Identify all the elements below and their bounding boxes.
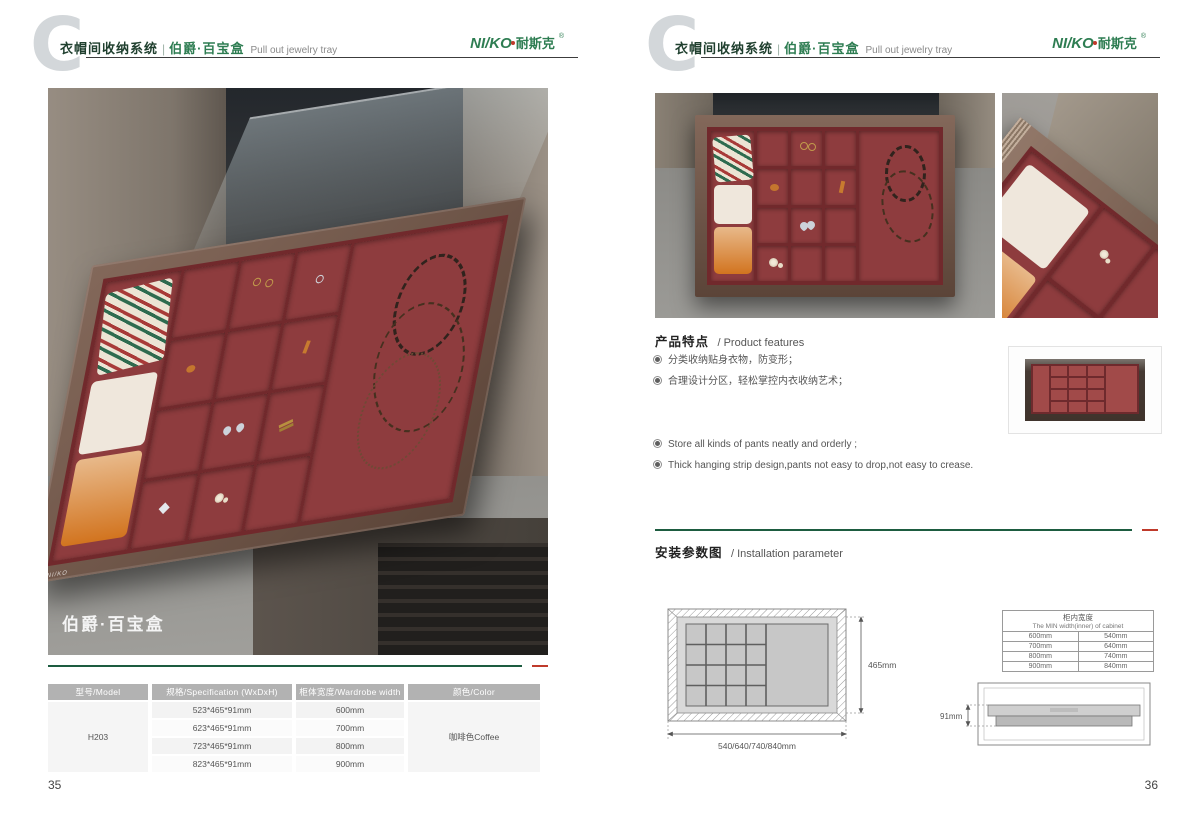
spec-model-cell: H203 [48,702,148,772]
series-title: 衣帽间收纳系统 [60,41,158,56]
nisko-logo: NI/KO 耐斯克 ® [1052,33,1146,52]
catalog-spread: C 衣帽间收纳系统|伯爵·百宝盒Pull out jewelry tray NI… [0,0,1200,820]
compartment [1033,366,1049,412]
product-thumbnail [1008,346,1162,434]
product-title: 伯爵·百宝盒 [784,41,859,56]
cream-scarf [77,372,157,455]
feature-text: 分类收纳贴身衣物，防变形； [668,354,798,368]
thumbnail-tray [1025,359,1145,421]
crystal-icon [159,503,170,515]
spec-header-width: 柜体宽度/Wardrobe width [296,684,404,700]
spec-cell: 600mm [296,702,404,718]
spec-cell: 823*465*91mm [152,756,292,772]
product-title: 伯爵·百宝盒 [169,41,244,56]
orange-scarf [714,227,752,274]
product-name-overlay: 伯爵·百宝盒 [62,610,165,635]
cell: 900mm [1003,662,1079,672]
compartment [757,169,788,204]
compartment [791,169,822,204]
logo-latin: NI/KO [470,35,512,52]
header-title: 衣帽间收纳系统|伯爵·百宝盒Pull out jewelry tray [675,38,952,58]
cell: 740mm [1078,652,1154,662]
compartment [825,169,856,204]
earring-icon [808,143,816,151]
tray-compartments [707,127,943,285]
heart-earring-icon [221,424,232,436]
heart-earring-icon [235,421,246,433]
feature-item: Store all kinds of pants neatly and orde… [655,438,1005,452]
table-row: 900mm840mm [1003,662,1154,672]
feature-item: Thick hanging strip design,pants not eas… [655,459,1005,473]
amber-pendant-icon [186,364,196,373]
features-list-cn: 分类收纳贴身衣物，防变形； 合理设计分区，轻松掌控内衣收纳艺术； [655,354,1005,395]
cell: 800mm [1003,652,1079,662]
compartment [1069,390,1086,400]
feature-text: 合理设计分区，轻松掌控内衣收纳艺术； [668,375,848,389]
header-title: 衣帽间收纳系统|伯爵·百宝盒Pull out jewelry tray [60,38,337,58]
logo-cjk: 耐斯克 [1098,33,1137,52]
bullet-icon [655,441,660,446]
compartment [757,131,788,166]
orange-scarf [60,450,143,547]
earring-icon [252,278,262,288]
logo-o-dot-icon [1093,41,1097,45]
feature-item: 合理设计分区，轻松掌控内衣收纳艺术； [655,375,1005,389]
compartment [757,208,788,243]
spec-cell: 523*465*91mm [152,702,292,718]
header-rule [86,57,578,58]
photo-tray-detail [1002,93,1158,318]
min-width-table: 柜内宽度 The MIN width(inner) of cabinet 600… [1002,610,1154,672]
compartment [791,131,822,166]
height-dimension-label: 91mm [940,712,963,721]
compartment [825,208,856,243]
rule-green [655,529,1132,531]
header-rule [701,57,1160,58]
heart-earring-icon [805,219,816,230]
cream-scarf [714,185,752,224]
compartment [1069,378,1086,388]
title-divider: | [777,42,780,56]
spec-cell: 800mm [296,738,404,754]
flower-earring-icon [769,258,778,267]
rule-red [1142,529,1158,531]
bullet-icon [655,378,660,383]
cell: 840mm [1078,662,1154,672]
compartment [757,246,788,281]
page-header-left: C 衣帽间收纳系统|伯爵·百宝盒Pull out jewelry tray NI… [30,16,578,76]
installation-title: 安装参数图 / Installation parameter [655,542,843,562]
compartment [1088,390,1105,400]
feature-text: Store all kinds of pants neatly and orde… [668,438,857,452]
series-title: 衣帽间收纳系统 [675,41,773,56]
spec-header-model: 型号/Model [48,684,148,700]
logo-registered-mark: ® [1141,33,1146,40]
bullet-icon [655,357,660,362]
nisko-logo: NI/KO 耐斯克 ® [470,33,564,52]
cell: 540mm [1078,632,1154,642]
compartment [1051,402,1068,412]
scarf-compartment [711,131,754,281]
depth-dimension-label: 465mm [868,660,896,670]
cell: 600mm [1003,632,1079,642]
compartment [791,246,822,281]
jewelry-tray [695,115,955,297]
tray-brand-text: NI/KO [48,570,68,580]
spec-color-cell: 咖啡色Coffee [408,702,540,772]
striped-scarf [96,277,173,376]
min-width-table-header: 柜内宽度 The MIN width(inner) of cabinet [1003,611,1154,632]
top-view-drawing: 465mm 540/640/740/840mm [660,603,920,755]
compartment [1051,390,1068,400]
necklace-compartment [859,131,939,281]
thumbnail-compartments [1031,364,1139,414]
section-rule [48,665,548,668]
feature-item: 分类收纳贴身衣物，防变形； [655,354,1005,368]
logo-registered-mark: ® [559,33,564,40]
table-row: 柜内宽度 The MIN width(inner) of cabinet [1003,611,1154,632]
page-header-right: C 衣帽间收纳系统|伯爵·百宝盒Pull out jewelry tray NI… [645,16,1160,76]
installation-title-cn: 安装参数图 [655,546,723,560]
table-row: 600mm540mm [1003,632,1154,642]
features-list-en: Store all kinds of pants neatly and orde… [655,438,1005,479]
amber-pendant-icon [770,184,779,191]
section-rule [655,529,1158,532]
compartment [1106,366,1137,412]
ring-icon [315,274,325,284]
features-title: 产品特点 / Product features [655,331,804,351]
flower-earring-icon [214,492,225,503]
min-width-title-en: The MIN width(inner) of cabinet [1003,623,1153,630]
rule-red [532,665,548,667]
spec-table: 型号/Model 规格/Specification (WxDxH) 柜体宽度/W… [48,684,540,772]
spec-cell: 723*465*91mm [152,738,292,754]
width-dimension-label: 540/640/740/840mm [718,741,796,751]
table-row: 700mm640mm [1003,642,1154,652]
feature-text: Thick hanging strip design,pants not eas… [668,459,973,473]
cell: 700mm [1003,642,1079,652]
min-width-title-cn: 柜内宽度 [1003,612,1153,623]
page-number-right: 36 [1128,778,1158,792]
logo-latin: NI/KO [1052,35,1094,52]
tassel-icon [838,181,844,194]
tray-compartments [48,215,508,566]
title-divider: | [162,42,165,56]
product-title-en: Pull out jewelry tray [865,45,952,56]
compartment [825,131,856,166]
spec-cell: 623*465*91mm [152,720,292,736]
flower-earring-icon [1098,248,1111,261]
page-number-left: 35 [48,778,61,792]
tray-brand-plate [1050,708,1078,712]
compartment [1088,402,1105,412]
gold-pin-icon [279,419,293,428]
logo-o-dot-icon [511,41,515,45]
compartment [1088,378,1105,388]
photo-tray-topview [655,93,995,318]
compartment [1051,378,1068,388]
table-row: 800mm740mm [1003,652,1154,662]
logo-cjk: 耐斯克 [516,33,555,52]
compartment [1069,366,1086,376]
spec-header-color: 颜色/Color [408,684,540,700]
spec-header-specification: 规格/Specification (WxDxH) [152,684,292,700]
features-title-cn: 产品特点 [655,335,709,349]
compartment [791,208,822,243]
hanger-rack [378,543,548,655]
compartment [1088,366,1105,376]
compartment [1051,366,1068,376]
installation-title-en: / Installation parameter [731,548,843,560]
rule-green [48,665,522,667]
compartment [1069,402,1086,412]
spec-cell: 700mm [296,720,404,736]
striped-scarf [712,134,754,182]
features-title-en: / Product features [717,337,804,349]
tassel-icon [302,341,311,354]
side-view-drawing: 91mm [938,678,1163,752]
compartment [825,246,856,281]
bullet-icon [655,462,660,467]
photo-wardrobe-tray: NI/KO 伯爵·百宝盒 [48,88,548,655]
spec-cell: 900mm [296,756,404,772]
tray-drawer-body [996,716,1132,726]
cell: 640mm [1078,642,1154,652]
earring-icon [264,278,274,288]
product-title-en: Pull out jewelry tray [250,45,337,56]
